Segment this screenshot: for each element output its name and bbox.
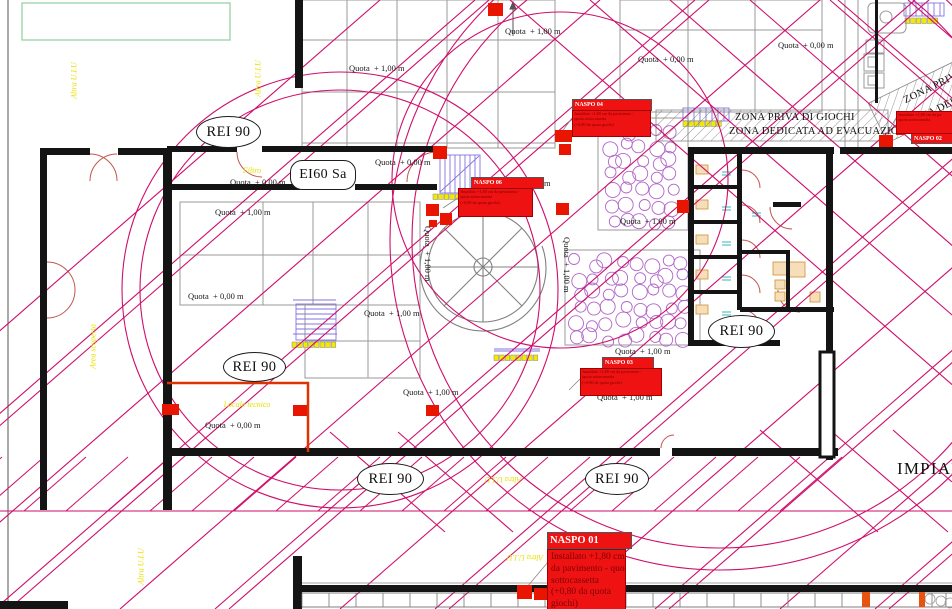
naspo-note: Installato +1,80 cmda pavimento - quotas… bbox=[547, 549, 626, 609]
plan-title-partial: IMPIAN bbox=[897, 459, 952, 479]
magenta-hatch-lines bbox=[0, 0, 952, 609]
hydrant-marker bbox=[426, 204, 439, 216]
area-label: Altra U.I.U bbox=[254, 47, 263, 111]
naspo-header: NASPO 01 bbox=[547, 532, 632, 549]
quota-label: Quota + 0,00 m bbox=[230, 177, 286, 187]
green-zone-rect bbox=[22, 3, 230, 40]
quota-label: Quota + 1,00 m bbox=[423, 226, 433, 282]
hydrant-marker bbox=[488, 3, 503, 16]
quota-label: Quota + 0,00 m bbox=[638, 54, 694, 64]
naspo-note-line: sottocassetta bbox=[551, 576, 625, 588]
area-label: Altra U.I.U bbox=[70, 49, 79, 113]
hydrant-marker bbox=[555, 130, 572, 142]
quota-label: Quota + 0,00 m bbox=[778, 40, 834, 50]
stair-icon bbox=[293, 304, 337, 340]
quota-label: Quota + 1,00 m bbox=[615, 346, 671, 356]
naspo-note-line: (+0,80 da quota bbox=[551, 587, 625, 599]
quota-label: Quota + 1,00 m bbox=[403, 387, 459, 397]
lift-icon bbox=[868, 3, 906, 33]
hydrant-marker bbox=[919, 592, 925, 607]
naspo-note-line: (+0,80 da quota giochi) bbox=[460, 201, 533, 206]
fire-rating-label: REI 90 bbox=[223, 352, 286, 382]
hydrant-marker bbox=[426, 405, 439, 416]
quota-label: Quota + 1,00 m bbox=[349, 63, 405, 73]
plan-graphics bbox=[0, 0, 952, 609]
fire-rating-label: REI 90 bbox=[585, 463, 649, 495]
play-circle-clusters bbox=[569, 121, 692, 348]
naspo-note-line: Installato +1,80 cm bbox=[551, 552, 625, 564]
naspo-note: Installato +1,80 cm da pavimento -quota … bbox=[458, 188, 533, 217]
hydrant-marker bbox=[556, 203, 569, 215]
area-label: Area scoperta bbox=[89, 315, 98, 379]
area-label: Locale tecnico bbox=[215, 400, 279, 409]
naspo-note-line: (+0,80 da quota giochi) bbox=[582, 381, 662, 386]
quota-label: Quota + 0,00 m bbox=[205, 420, 261, 430]
area-label: Altra U.I.U bbox=[471, 475, 535, 484]
naspo-note-line: giochi) bbox=[551, 599, 625, 609]
fire-rating-label: REI 90 bbox=[357, 463, 424, 495]
naspo-note-line: da pavimento - quota bbox=[551, 564, 625, 576]
area-label: Altra U.I.U bbox=[137, 535, 146, 599]
naspo-note-line: (+0,80 da quota giochi) bbox=[574, 123, 651, 128]
hydrant-marker bbox=[862, 592, 870, 607]
hydrant-marker bbox=[534, 588, 547, 600]
hydrant-marker bbox=[293, 405, 307, 416]
hydrant-marker bbox=[559, 144, 571, 155]
hydrant-marker bbox=[517, 585, 532, 599]
quota-label: Quota + 1,00 m bbox=[505, 26, 561, 36]
quota-label: Quota + 0,00 m bbox=[375, 157, 431, 167]
quota-label: Quota + 1,00 m bbox=[620, 216, 676, 226]
spiral-structure bbox=[420, 212, 546, 331]
hydrant-marker bbox=[677, 200, 689, 213]
quota-label: Quota + 1,00 m bbox=[562, 237, 572, 293]
fire-rating-label: REI 90 bbox=[708, 315, 775, 348]
hydrant-marker bbox=[162, 404, 179, 415]
duct-shaft bbox=[820, 352, 834, 457]
fire-rating-label: EI60 Sa bbox=[290, 160, 356, 190]
naspo-note: Installato +1,80 cm da pavimento -quota … bbox=[580, 368, 662, 396]
naspo-note: Installato +1,80 cm da pavimento -quota … bbox=[572, 110, 651, 137]
naspo-note: Installato +1,80 cm da pa-quota sottocas… bbox=[896, 111, 952, 134]
quota-label: Quota + 1,00 m bbox=[364, 308, 420, 318]
fire-rating-label: REI 90 bbox=[196, 116, 261, 148]
naspo-header: NASPO 02 bbox=[911, 133, 952, 144]
naspo-note-line: quota sottocassetta bbox=[898, 118, 952, 123]
stairs bbox=[293, 3, 944, 351]
floor-plan-canvas: ZONA PRIVA DI GIOCHI ZONA DEDICATA AD EV… bbox=[0, 0, 952, 609]
area-label: Filtro bbox=[220, 166, 284, 175]
quota-label: Quota + 0,00 m bbox=[188, 291, 244, 301]
quota-label: Quota + 1,00 m bbox=[215, 207, 271, 217]
zone-label-line1: ZONA PRIVA DI GIOCHI bbox=[735, 112, 855, 123]
hydrant-marker bbox=[433, 146, 447, 159]
zone-label-line2: ZONA DEDICATA AD EVACUAZIONE bbox=[729, 126, 913, 137]
hydrant-marker bbox=[440, 213, 452, 225]
